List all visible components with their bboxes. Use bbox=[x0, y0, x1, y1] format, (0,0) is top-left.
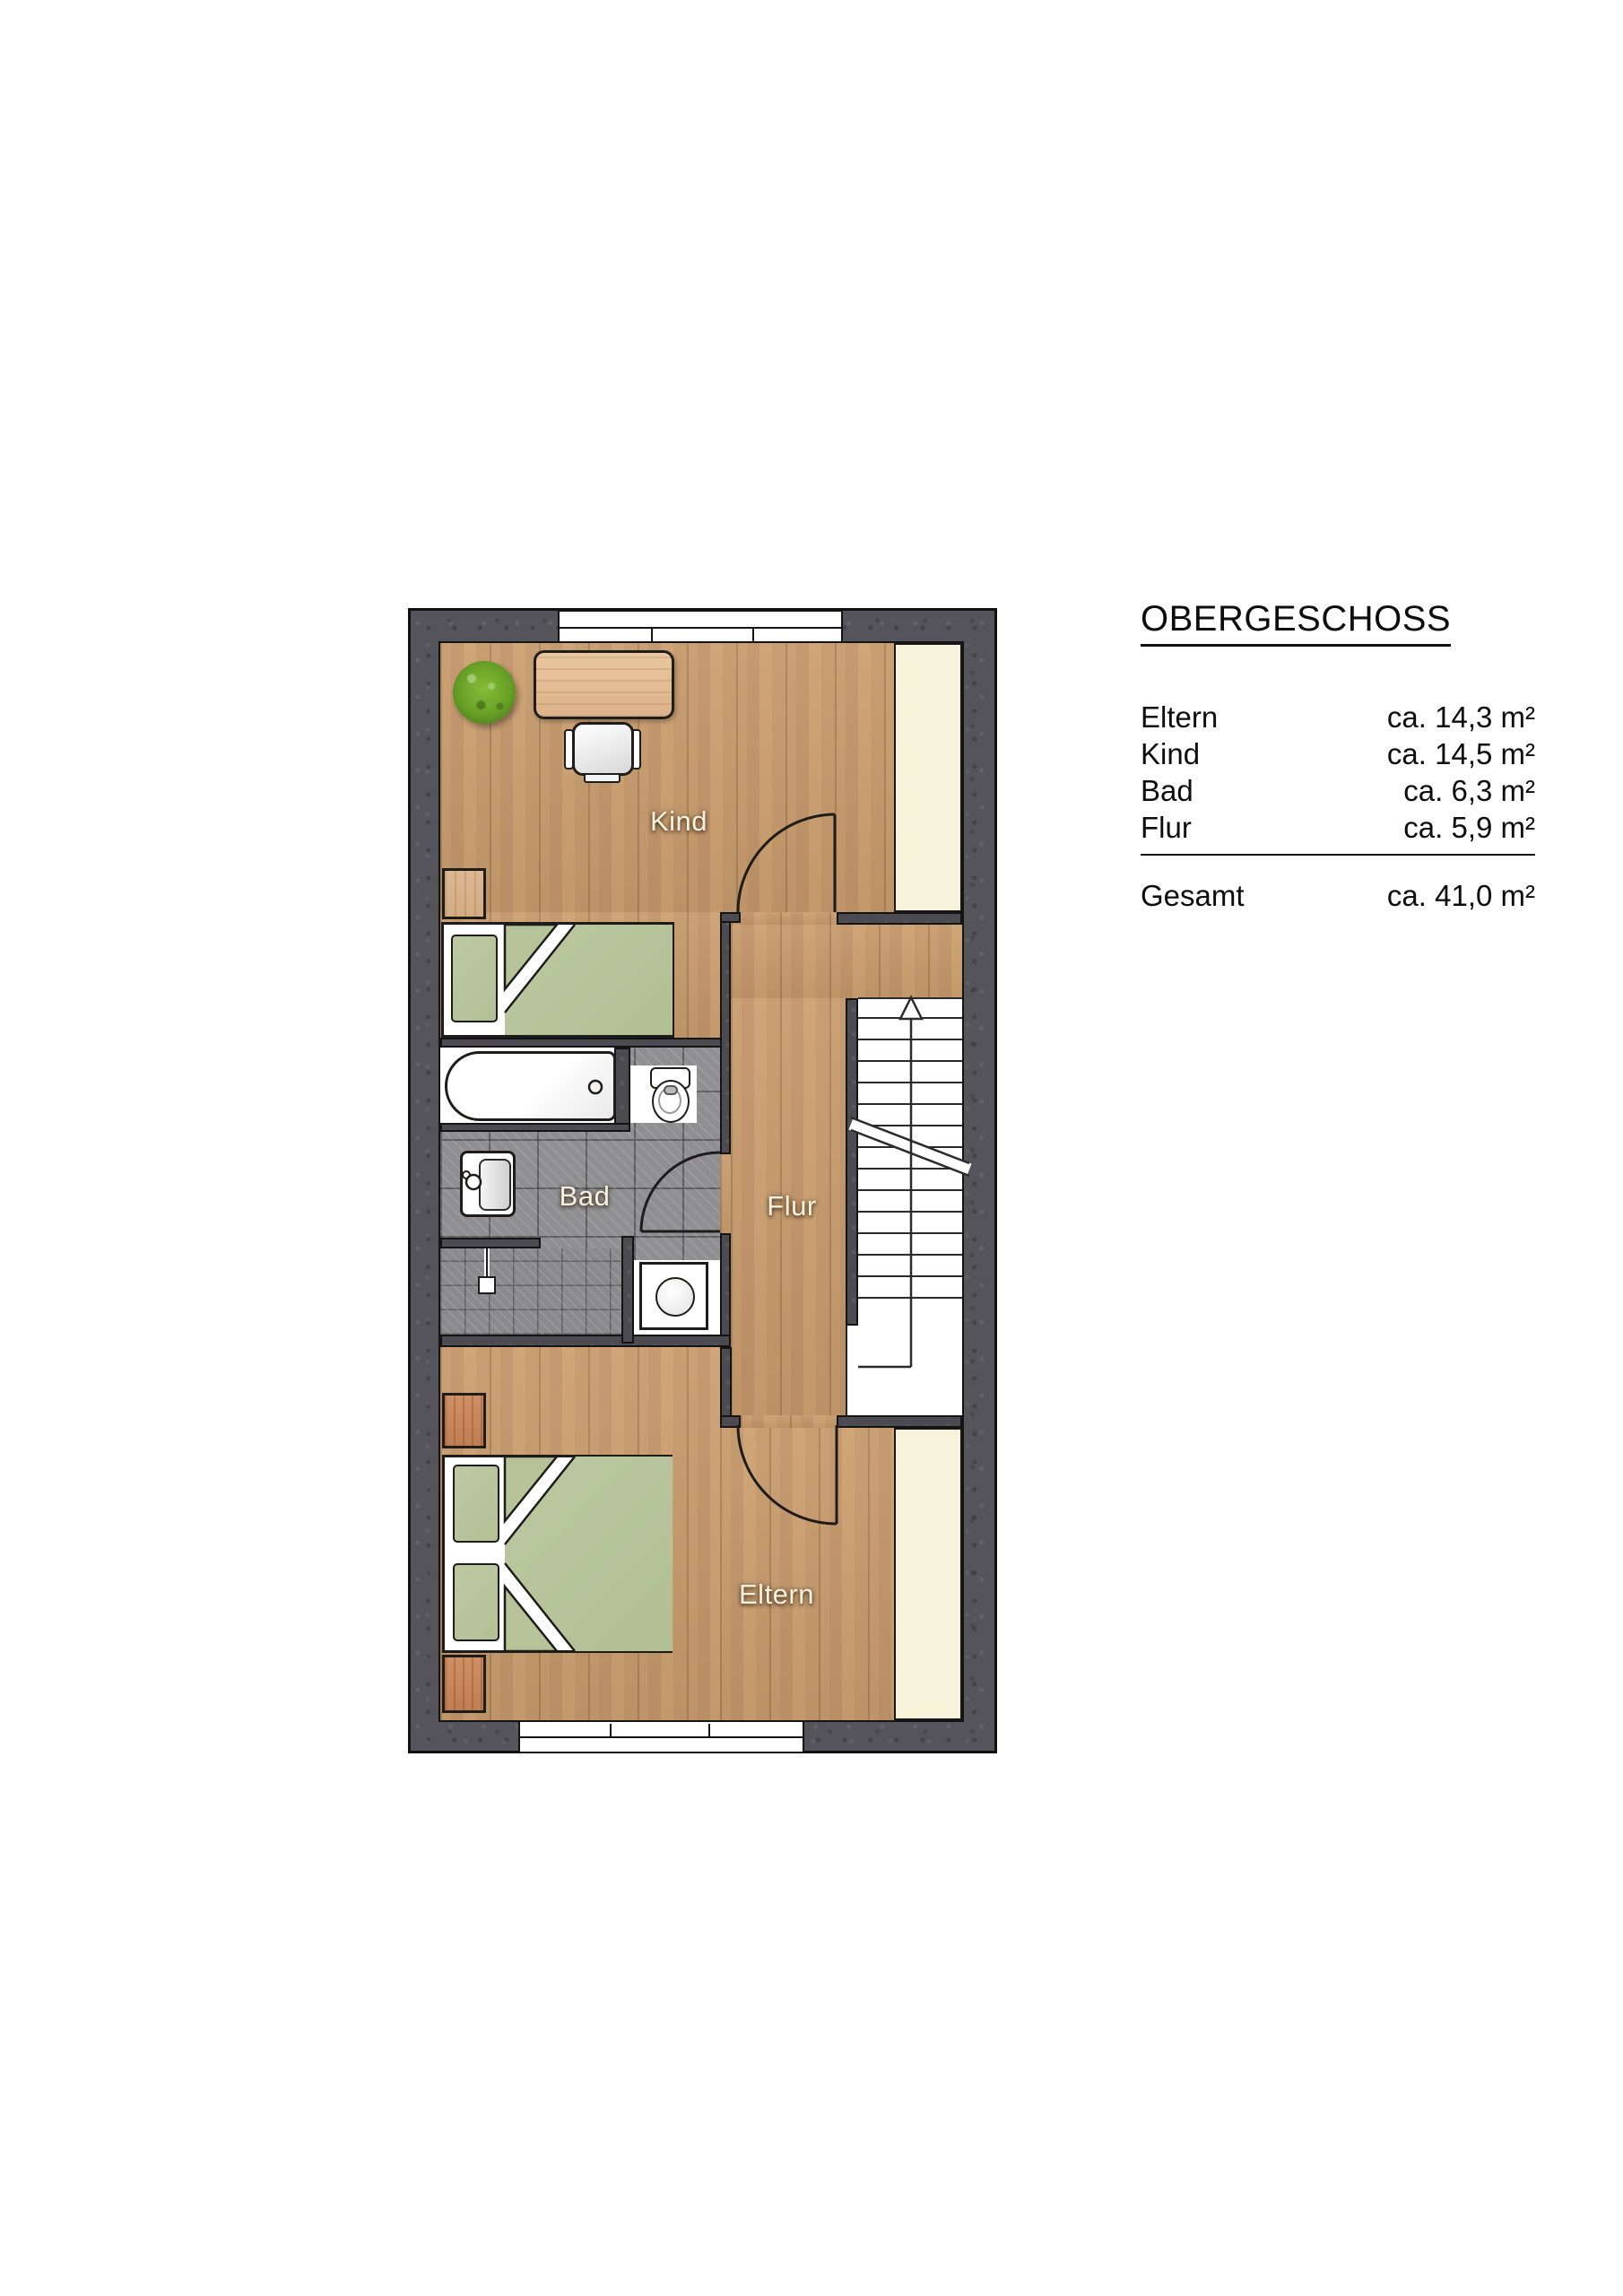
window-top bbox=[558, 610, 843, 643]
legend-label: Kind bbox=[1141, 735, 1200, 772]
window-bottom bbox=[518, 1720, 804, 1753]
legend-total-row: Gesamt ca. 41,0 m² bbox=[1141, 879, 1535, 913]
legend-row-eltern: Eltern ca. 14,3 m² bbox=[1141, 699, 1535, 735]
legend-area: ca. 14,3 m² bbox=[1387, 699, 1535, 735]
stairwell-landing bbox=[846, 1326, 858, 1415]
bed-kind-pillow bbox=[451, 935, 498, 1022]
shower-area-floor bbox=[440, 1248, 621, 1335]
legend-title: OBERGESCHOSS bbox=[1141, 599, 1451, 647]
storage-strip-top bbox=[894, 643, 962, 912]
bed-eltern-pillow-bottom bbox=[453, 1563, 499, 1641]
bad-door-threshold bbox=[720, 1154, 731, 1233]
legend-label: Flur bbox=[1141, 809, 1192, 846]
wall-washer-stub bbox=[621, 1236, 634, 1344]
eltern-door-threshold bbox=[741, 1415, 837, 1428]
legend-area: ca. 5,9 m² bbox=[1403, 809, 1535, 846]
room-label-flur: Flur bbox=[767, 1190, 816, 1222]
legend-area: ca. 14,5 m² bbox=[1387, 735, 1535, 772]
wall-below-bad bbox=[720, 1347, 732, 1417]
eltern-door-jamb bbox=[720, 1415, 741, 1428]
plant bbox=[453, 661, 516, 724]
room-label-bad: Bad bbox=[560, 1180, 611, 1213]
toilet bbox=[652, 1080, 690, 1123]
legend-area: ca. 6,3 m² bbox=[1403, 772, 1535, 809]
wall-kind-bad bbox=[440, 1038, 731, 1048]
legend-total-area: ca. 41,0 m² bbox=[1387, 879, 1535, 913]
legend-row-flur: Flur ca. 5,9 m² bbox=[1141, 809, 1535, 846]
nightstand-eltern-bottom bbox=[442, 1655, 486, 1713]
wall-flur-left-lower bbox=[720, 1233, 731, 1347]
legend-row-kind: Kind ca. 14,5 m² bbox=[1141, 735, 1535, 772]
legend-label: Eltern bbox=[1141, 699, 1218, 735]
legend: OBERGESCHOSS Eltern ca. 14,3 m² Kind ca.… bbox=[1141, 599, 1535, 913]
wall-stair-top bbox=[837, 912, 962, 925]
room-label-eltern: Eltern bbox=[739, 1578, 814, 1611]
room-label-kind: Kind bbox=[650, 805, 707, 838]
nightstand-kind bbox=[442, 868, 486, 919]
hallway-floor-upper bbox=[731, 925, 962, 998]
legend-label: Bad bbox=[1141, 772, 1193, 809]
sink bbox=[460, 1151, 516, 1217]
desk bbox=[534, 650, 674, 719]
washing-machine bbox=[639, 1262, 708, 1330]
desk-chair bbox=[572, 722, 634, 776]
kind-door-jamb bbox=[720, 912, 741, 923]
nightstand-eltern-top bbox=[442, 1393, 486, 1448]
legend-separator bbox=[1141, 854, 1535, 856]
bathtub bbox=[445, 1051, 616, 1121]
wall-bad-bottom bbox=[440, 1335, 731, 1347]
room-eltern-floor-right bbox=[720, 1428, 894, 1720]
wall-stair-bottom bbox=[837, 1415, 962, 1428]
wall-shower-stub bbox=[440, 1238, 541, 1248]
chair-backrest bbox=[584, 773, 621, 783]
wall-tub-foot bbox=[440, 1123, 630, 1132]
storage-strip-bottom bbox=[894, 1428, 962, 1720]
legend-row-bad: Bad ca. 6,3 m² bbox=[1141, 772, 1535, 809]
wall-tub-toilet-stub bbox=[614, 1048, 630, 1132]
legend-total-label: Gesamt bbox=[1141, 879, 1245, 913]
legend-rows: Eltern ca. 14,3 m² Kind ca. 14,5 m² Bad … bbox=[1141, 699, 1535, 846]
stairwell-floor bbox=[858, 998, 962, 1415]
bed-eltern-pillow-top bbox=[453, 1465, 499, 1543]
shower-fixture bbox=[478, 1276, 496, 1294]
floorplan-page: Kind Bad Flur Eltern OBERGESCHOSS Eltern… bbox=[0, 0, 1623, 2296]
wall-stair-left bbox=[846, 998, 858, 1326]
kind-door-threshold bbox=[731, 912, 837, 925]
wall-flur-left-upper bbox=[720, 912, 731, 1154]
